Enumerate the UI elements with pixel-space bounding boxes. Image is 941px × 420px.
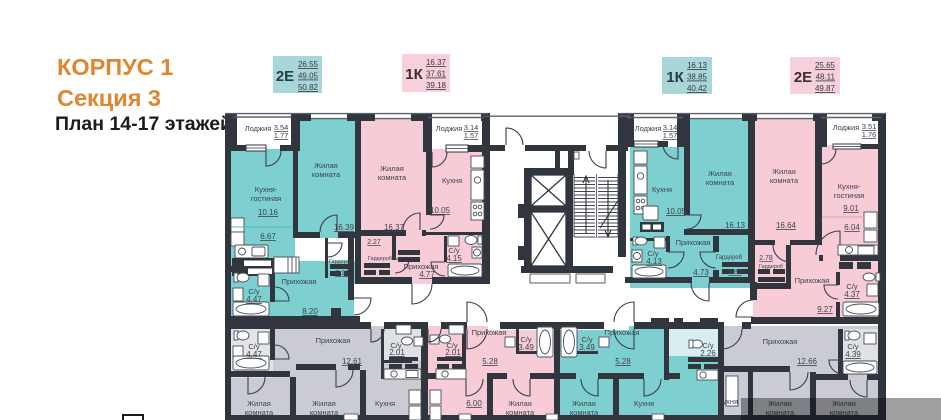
svg-text:Гардероб: Гардероб — [368, 256, 392, 262]
svg-text:38.85: 38.85 — [687, 73, 708, 82]
svg-text:Прихожая: Прихожая — [282, 277, 317, 286]
svg-text:4.39: 4.39 — [845, 350, 861, 359]
svg-text:2.01: 2.01 — [445, 348, 461, 357]
svg-text:КОРПУС 1: КОРПУС 1 — [57, 54, 173, 80]
svg-text:1.77: 1.77 — [274, 131, 289, 140]
svg-text:Кухня: Кухня — [652, 185, 672, 194]
svg-text:12.66: 12.66 — [797, 357, 818, 366]
svg-text:8.20: 8.20 — [302, 307, 318, 316]
svg-text:3.49: 3.49 — [579, 343, 595, 352]
svg-text:40.42: 40.42 — [687, 84, 708, 93]
svg-text:Жилая: Жилая — [508, 399, 532, 408]
svg-text:Кухня: Кухня — [634, 399, 654, 408]
svg-text:3.16: 3.16 — [335, 270, 349, 277]
svg-text:1.57: 1.57 — [663, 131, 678, 140]
svg-text:12.61: 12.61 — [342, 357, 363, 366]
svg-text:Кухня-: Кухня- — [255, 185, 278, 194]
svg-text:9.27: 9.27 — [817, 305, 833, 314]
svg-text:Прихожая: Прихожая — [763, 337, 798, 346]
svg-text:1.76: 1.76 — [862, 130, 877, 139]
svg-text:Жилая: Жилая — [572, 399, 596, 408]
svg-text:16.13: 16.13 — [687, 61, 708, 70]
svg-text:5.28: 5.28 — [482, 357, 498, 366]
svg-text:10.16: 10.16 — [258, 208, 279, 217]
svg-text:1.57: 1.57 — [464, 131, 479, 140]
svg-text:Жилая: Жилая — [312, 399, 336, 408]
svg-text:Прихожая: Прихожая — [316, 336, 351, 345]
svg-text:Гардероб: Гардероб — [759, 264, 783, 270]
svg-text:16.37: 16.37 — [426, 58, 447, 67]
svg-text:2.78: 2.78 — [759, 255, 773, 262]
svg-text:Секция 3: Секция 3 — [57, 85, 161, 111]
svg-text:49.87: 49.87 — [815, 84, 836, 93]
svg-text:Прихожая: Прихожая — [676, 238, 711, 247]
svg-text:2.27: 2.27 — [367, 239, 381, 246]
svg-text:Жилая: Жилая — [247, 399, 271, 408]
svg-text:Жилая: Жилая — [772, 167, 796, 176]
svg-text:16.13: 16.13 — [725, 221, 746, 230]
svg-text:3.49: 3.49 — [518, 343, 534, 352]
svg-text:4.15: 4.15 — [446, 254, 462, 263]
svg-text:Жилая: Жилая — [380, 164, 404, 173]
svg-text:Кухня: Кухня — [718, 397, 738, 406]
svg-text:комната: комната — [378, 173, 407, 182]
svg-text:4.37: 4.37 — [844, 290, 860, 299]
svg-text:10.05: 10.05 — [430, 206, 451, 215]
svg-text:25.65: 25.65 — [815, 61, 836, 70]
svg-text:Гардероб: Гардероб — [716, 255, 743, 261]
svg-text:16.64: 16.64 — [776, 221, 797, 230]
svg-text:Кухня-: Кухня- — [838, 182, 861, 191]
svg-text:комната: комната — [312, 170, 341, 179]
svg-text:50.82: 50.82 — [298, 83, 319, 92]
svg-text:16.37: 16.37 — [384, 223, 405, 232]
svg-text:26.55: 26.55 — [298, 60, 319, 69]
svg-text:9.01: 9.01 — [843, 204, 859, 213]
svg-text:6.04: 6.04 — [844, 223, 860, 232]
svg-text:48.11: 48.11 — [816, 73, 836, 82]
svg-text:Лоджия: Лоджия — [245, 124, 272, 133]
svg-text:Прихожая: Прихожая — [795, 276, 830, 285]
svg-text:3.81: 3.81 — [728, 269, 742, 276]
svg-text:гостиная: гостиная — [251, 194, 282, 203]
svg-text:гостиная: гостиная — [834, 191, 865, 200]
svg-text:Жилая: Жилая — [708, 169, 732, 178]
svg-text:Лоджия: Лоджия — [635, 124, 662, 133]
svg-text:10.05: 10.05 — [666, 207, 687, 216]
svg-text:39.18: 39.18 — [426, 81, 447, 90]
svg-text:Прихожая: Прихожая — [605, 328, 640, 337]
svg-text:2.26: 2.26 — [700, 349, 716, 358]
svg-text:4.13: 4.13 — [646, 257, 662, 266]
svg-text:1К: 1К — [405, 66, 423, 83]
svg-text:4.73: 4.73 — [693, 268, 709, 277]
svg-text:Гардероб: Гардероб — [329, 259, 353, 265]
svg-text:1К: 1К — [666, 69, 684, 86]
svg-text:37.61: 37.61 — [426, 70, 447, 79]
svg-text:2.01: 2.01 — [389, 348, 405, 357]
svg-text:Кухня: Кухня — [442, 176, 462, 185]
svg-text:2Е: 2Е — [794, 69, 812, 86]
svg-text:4.47: 4.47 — [246, 350, 262, 359]
svg-text:4.77: 4.77 — [419, 270, 435, 279]
svg-text:5.28: 5.28 — [615, 357, 631, 366]
svg-text:комната: комната — [706, 178, 735, 187]
svg-text:комната: комната — [770, 176, 799, 185]
svg-text:2Е: 2Е — [276, 68, 294, 85]
svg-text:Лоджия: Лоджия — [833, 123, 860, 132]
svg-text:Кухня: Кухня — [375, 399, 395, 408]
svg-text:16.39: 16.39 — [334, 223, 355, 232]
svg-text:Жилая: Жилая — [314, 161, 338, 170]
svg-text:4.47: 4.47 — [246, 295, 262, 304]
svg-text:Лоджия: Лоджия — [436, 124, 463, 133]
svg-text:6.67: 6.67 — [260, 232, 276, 241]
svg-text:План 14-17 этажей: План 14-17 этажей — [55, 113, 232, 135]
svg-text:49.05: 49.05 — [298, 72, 319, 81]
svg-text:Прихожая: Прихожая — [472, 328, 507, 337]
svg-text:6.00: 6.00 — [466, 399, 482, 408]
